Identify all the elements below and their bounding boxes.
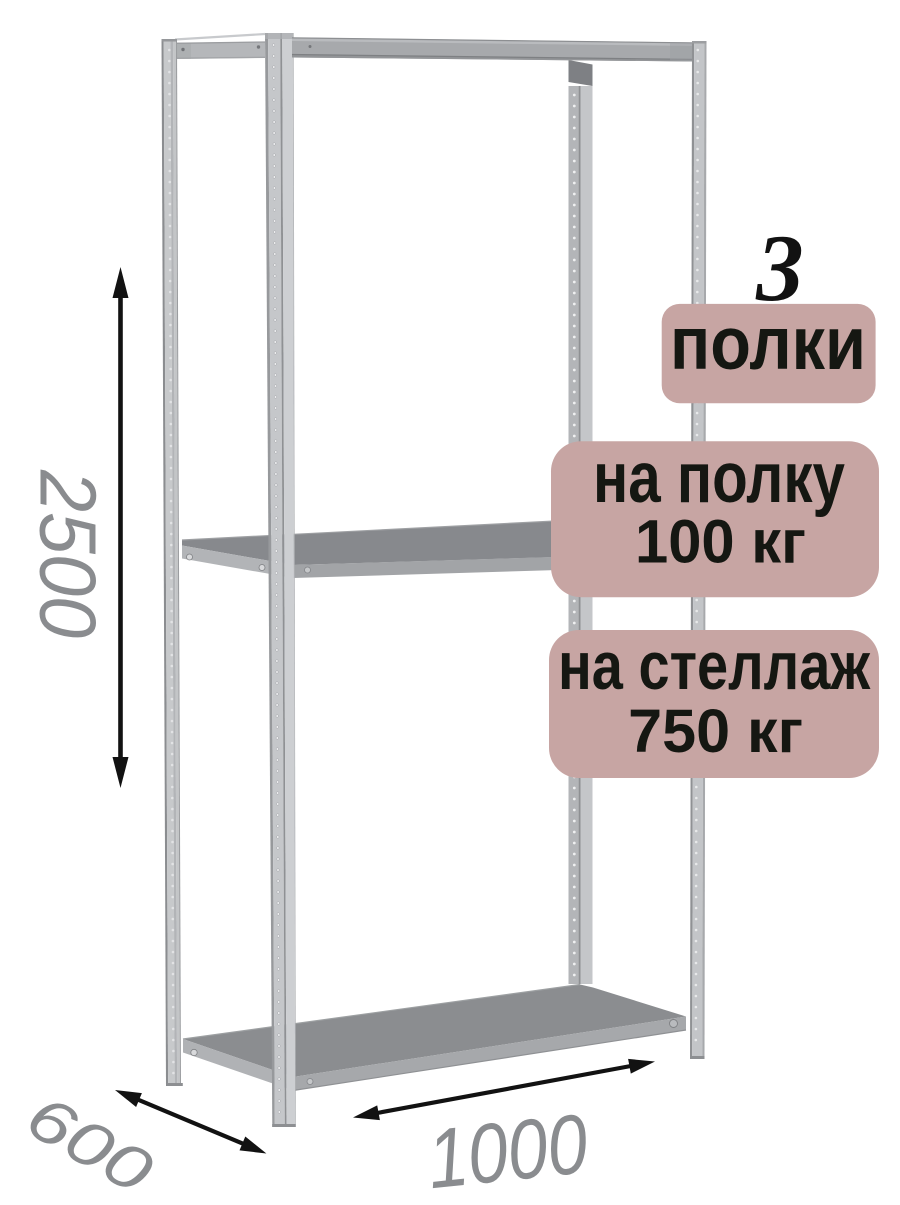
svg-text:2500: 2500 bbox=[23, 469, 112, 638]
svg-text:750 кг: 750 кг bbox=[628, 697, 803, 765]
svg-text:на полку: на полку bbox=[593, 439, 845, 518]
svg-text:1000: 1000 bbox=[423, 1096, 592, 1200]
svg-text:100 кг: 100 кг bbox=[635, 508, 806, 576]
svg-text:полки: полки bbox=[670, 301, 866, 385]
svg-text:на стеллаж: на стеллаж bbox=[558, 628, 871, 704]
